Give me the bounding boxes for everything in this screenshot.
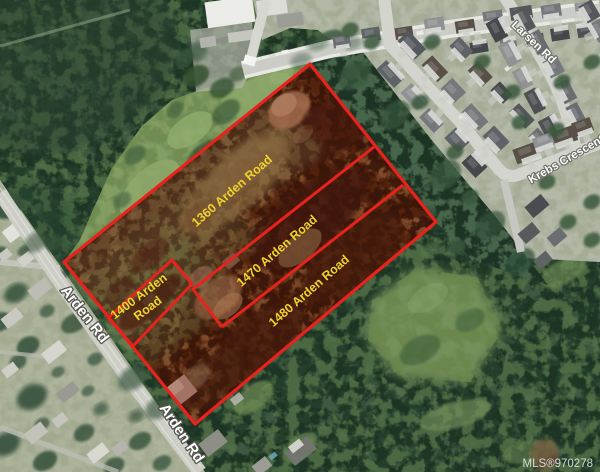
svg-text:MLS®970278: MLS®970278 [523,458,594,470]
